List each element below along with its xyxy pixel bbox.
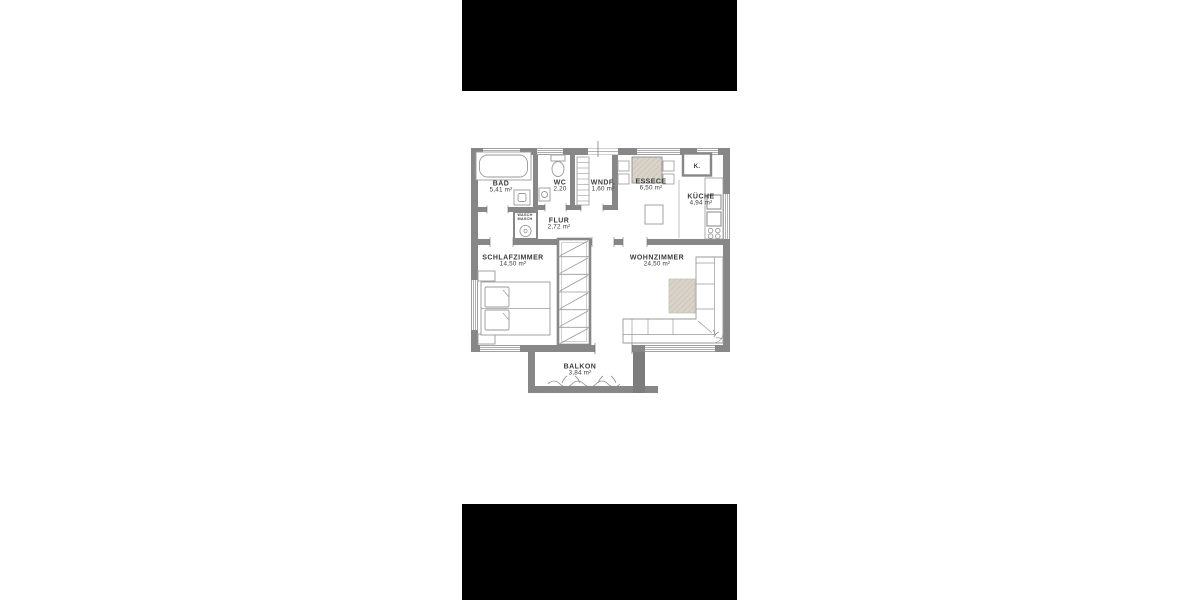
kitchen-counter	[705, 178, 723, 239]
balcony-door-opening	[595, 343, 632, 354]
page: BAD 5,41 m² WC 2,20 WNDF. 1,60 m² ESSECE…	[0, 0, 1200, 600]
bed	[478, 271, 550, 344]
bath-sink	[514, 190, 530, 205]
bathtub	[476, 152, 531, 180]
room-label-wc: WC 2,20	[553, 179, 566, 192]
letterbox-bottom	[462, 504, 737, 600]
toilet	[551, 155, 565, 177]
room-label-k: K.	[694, 164, 701, 170]
floorplan-drawing	[462, 91, 737, 504]
sideboard	[645, 205, 663, 224]
room-label-flur: FLUR 2,72 m²	[548, 217, 571, 230]
letterbox-top	[462, 0, 737, 91]
room-label-schlafzimmer: SCHLAFZIMMER 14,50 m²	[482, 254, 543, 267]
room-label-kueche: KÜCHE 4,94 m²	[687, 193, 714, 206]
rug	[669, 279, 695, 313]
hatched-shaft	[558, 239, 590, 345]
room-label-essece: ESSECE 6,50 m²	[635, 178, 666, 191]
washing-machine	[520, 225, 531, 236]
room-label-wndf: WNDF. 1,60 m²	[591, 179, 615, 192]
room-label-wasch: WASCH MASCH	[517, 214, 532, 222]
balcony-plants	[548, 376, 620, 387]
wc-sink	[539, 188, 550, 201]
room-label-wohnzimmer: WOHNZIMMER 24,50 m²	[630, 254, 684, 267]
room-label-bad: BAD 5,41 m²	[490, 180, 513, 193]
room-label-balkon: BALKON 3,84 m²	[564, 363, 597, 376]
shelf	[577, 157, 589, 205]
